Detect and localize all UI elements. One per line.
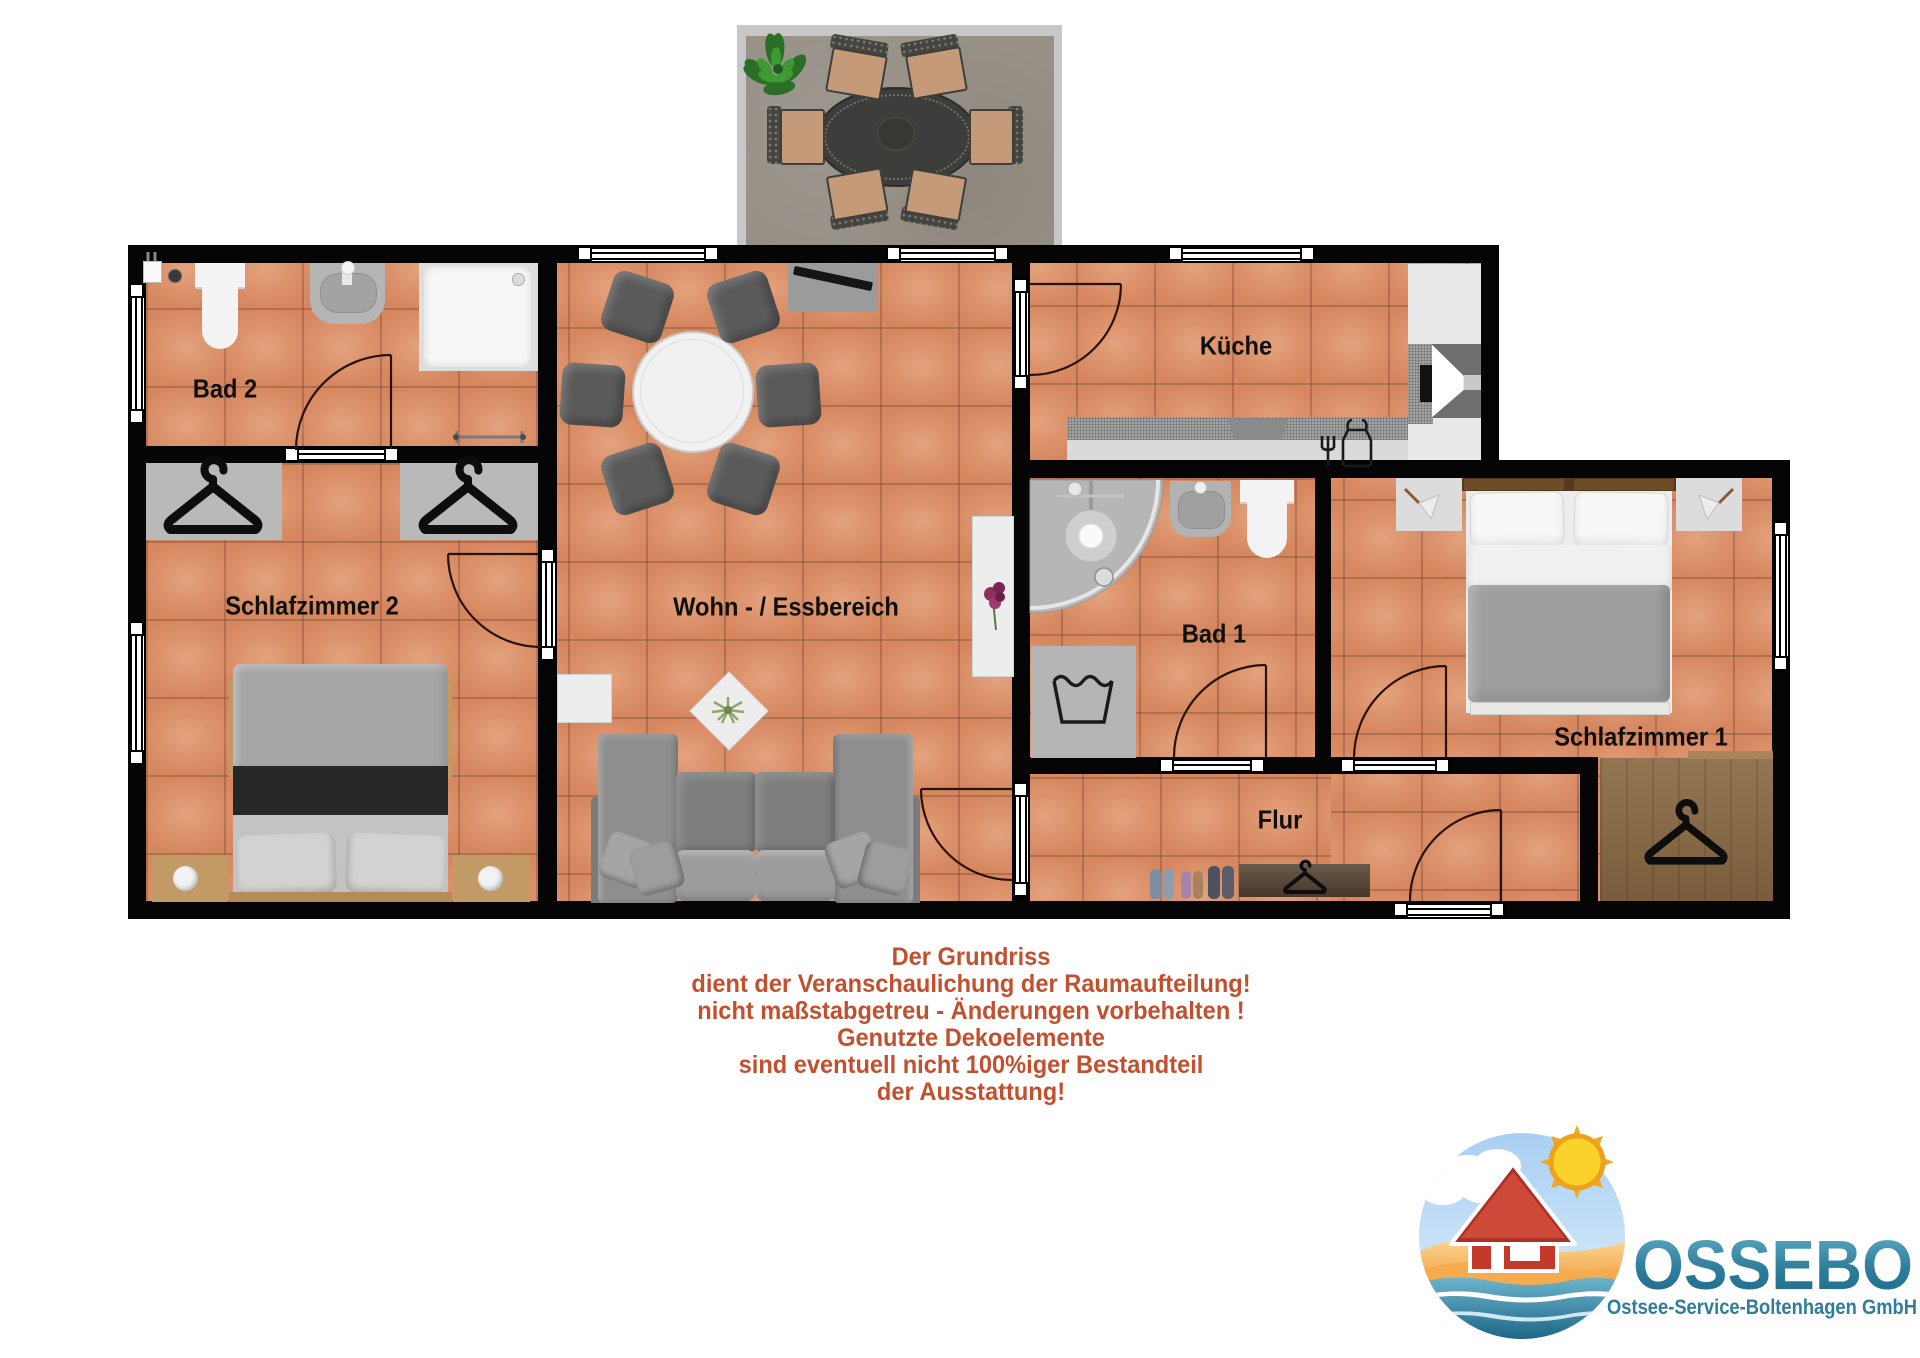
svg-text:Ostsee-Service-Boltenhagen Gmb: Ostsee-Service-Boltenhagen GmbH — [1607, 1296, 1917, 1319]
svg-text:OSSEBO: OSSEBO — [1633, 1226, 1913, 1304]
